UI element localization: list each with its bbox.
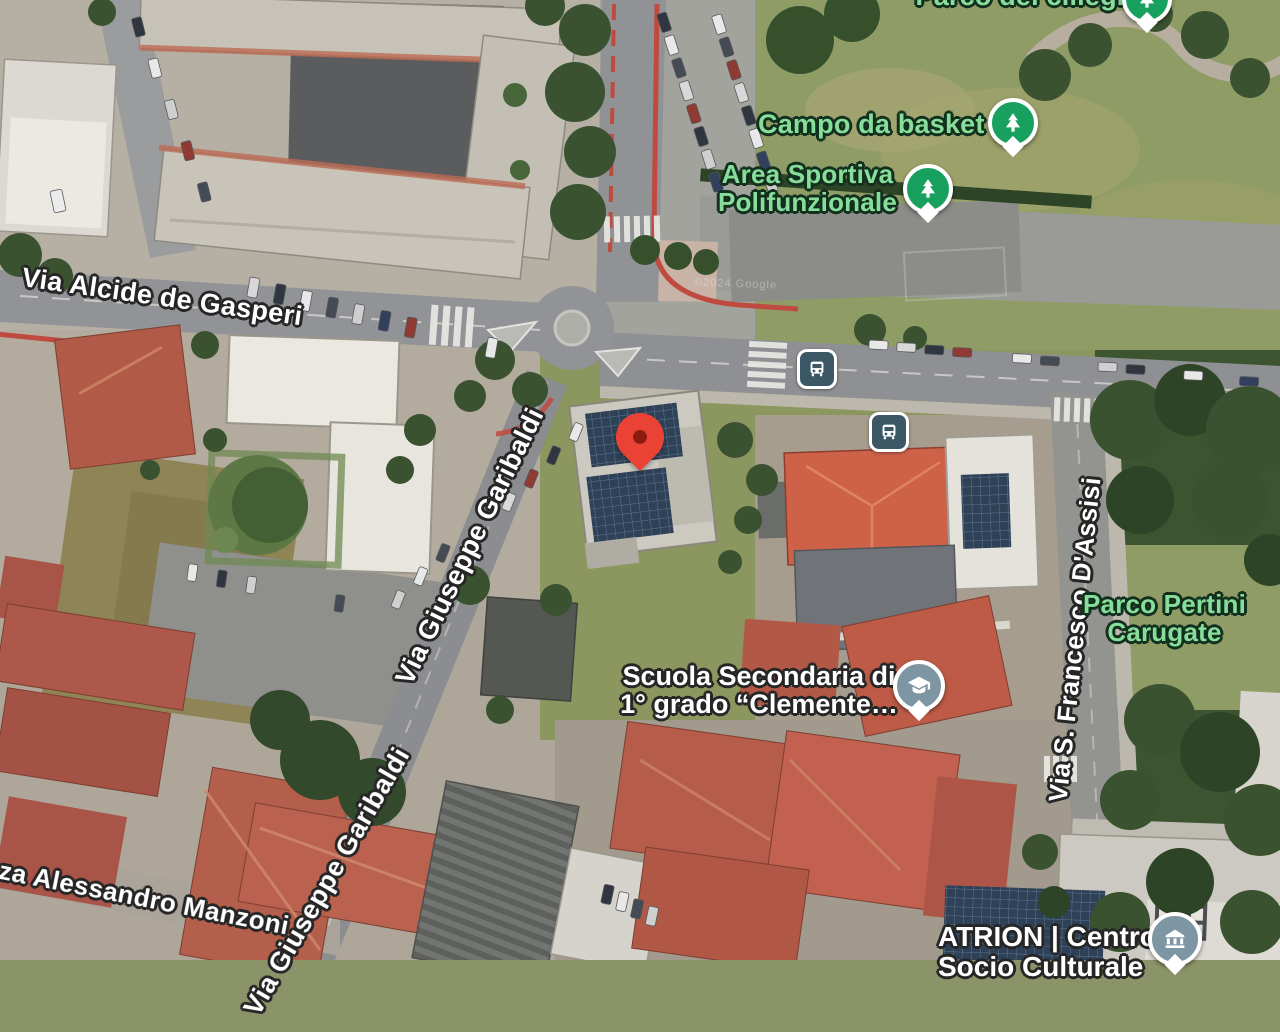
poi-label-line1: Parco Pertini — [1072, 590, 1257, 618]
bus-stop-icon[interactable] — [797, 349, 837, 389]
bus-stop-icon[interactable] — [869, 412, 909, 452]
poi-label-line2: Polifunzionale — [700, 188, 915, 216]
poi-label-line2: 1° grado “Clemente… — [600, 690, 918, 718]
tree-icon — [1134, 0, 1160, 12]
poi-label-area-sportiva-polifunzionale[interactable]: Area Sportiva Polifunzionale — [700, 160, 915, 216]
poi-label-line2: Socio Culturale — [938, 952, 1143, 982]
tree-icon — [915, 176, 941, 202]
museum-pin-icon[interactable] — [1148, 912, 1202, 966]
tree-pin-icon[interactable] — [903, 164, 953, 214]
poi-label-parco-pertini-carugate[interactable]: Parco Pertini Carugate — [1072, 590, 1257, 646]
poi-label-line1: ATRION | Centro — [938, 922, 1143, 952]
museum-icon — [1161, 925, 1189, 953]
map-canvas[interactable]: ©2024 Google Via Alcide de Gasperi Via G… — [0, 0, 1280, 960]
bus-icon — [878, 421, 900, 443]
poi-label-line1: Scuola Secondaria di — [600, 662, 918, 690]
poi-label-campo-da-basket[interactable]: Campo da basket — [758, 110, 985, 138]
poi-label-parco-top[interactable]: Parco dei ciliegi — [880, 0, 1160, 10]
bus-icon — [806, 358, 828, 380]
poi-label-atrion-centro-socio-culturale[interactable]: ATRION | Centro Socio Culturale — [938, 922, 1143, 982]
tree-pin-icon[interactable] — [988, 98, 1038, 148]
tree-icon — [1000, 110, 1026, 136]
poi-label-line2: Carugate — [1072, 618, 1257, 646]
pin-hole — [630, 427, 650, 447]
graduation-cap-icon — [905, 672, 933, 700]
poi-label-scuola-secondaria[interactable]: Scuola Secondaria di 1° grado “Clemente… — [600, 662, 918, 718]
school-pin-icon[interactable] — [893, 660, 945, 712]
poi-label-line1: Area Sportiva — [700, 160, 915, 188]
